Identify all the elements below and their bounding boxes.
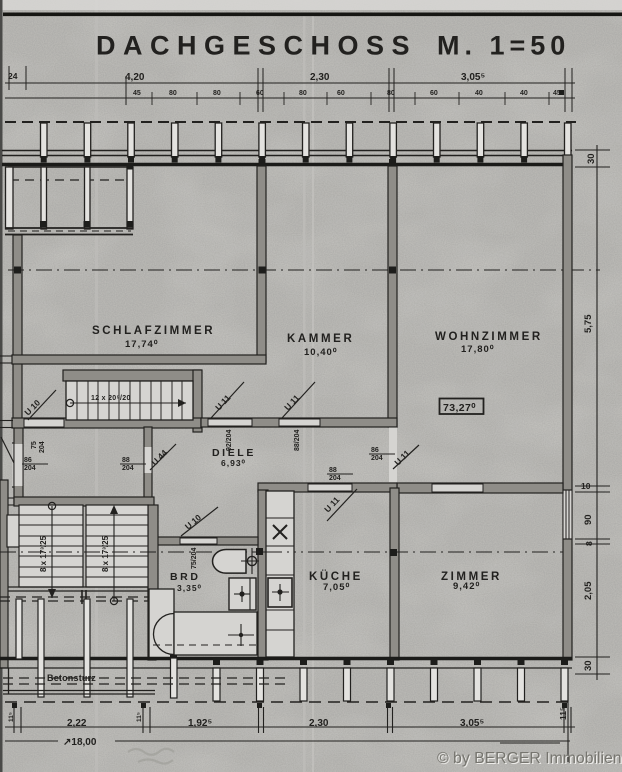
svg-text:204: 204 [122,465,134,472]
svg-text:8 x 17³/25: 8 x 17³/25 [39,535,48,572]
svg-text:40: 40 [475,90,483,97]
svg-text:↗18,00: ↗18,00 [63,737,97,748]
svg-text:Betonsturz: Betonsturz [47,673,96,683]
svg-text:80: 80 [213,90,221,97]
svg-text:24: 24 [8,71,18,81]
svg-text:80: 80 [169,90,177,97]
svg-text:2,22: 2,22 [67,718,87,729]
svg-text:204: 204 [329,475,341,482]
svg-text:60: 60 [430,90,438,97]
svg-text:M. 1=50: M. 1=50 [437,31,570,61]
svg-text:DACHGESCHOSS: DACHGESCHOSS [96,31,417,61]
svg-text:204: 204 [24,465,36,472]
svg-text:11⁵: 11⁵ [136,712,143,722]
svg-text:© by BERGER Immobilien: © by BERGER Immobilien [437,750,622,767]
svg-text:10: 10 [581,481,591,491]
svg-text:SCHLAFZIMMER: SCHLAFZIMMER [92,325,215,337]
svg-text:WOHNZIMMER: WOHNZIMMER [435,331,543,343]
svg-text:10,40⁰: 10,40⁰ [304,347,338,358]
svg-text:80: 80 [387,90,395,97]
svg-text:2,30: 2,30 [309,718,329,729]
svg-text:4,20: 4,20 [125,72,145,83]
svg-text:30: 30 [586,153,597,164]
svg-text:45: 45 [133,90,141,97]
svg-text:7,05⁰: 7,05⁰ [323,582,350,593]
svg-text:204: 204 [371,455,383,462]
svg-text:17,80⁰: 17,80⁰ [461,344,495,355]
svg-text:88: 88 [329,467,337,474]
svg-text:88: 88 [122,457,130,464]
svg-text:6,93⁰: 6,93⁰ [221,458,246,468]
svg-text:3,05⁵: 3,05⁵ [461,72,485,83]
svg-text:86: 86 [24,457,32,464]
svg-text:30: 30 [583,660,594,671]
svg-text:60: 60 [337,90,345,97]
svg-text:86: 86 [371,447,379,454]
svg-text:75: 75 [31,441,38,449]
svg-text:5,75: 5,75 [583,314,594,333]
svg-text:11⁵: 11⁵ [8,712,15,722]
svg-text:11⁵: 11⁵ [558,707,568,720]
svg-text:8: 8 [584,541,594,546]
svg-text:12 x 20⁵/20: 12 x 20⁵/20 [91,395,131,402]
svg-text:60: 60 [256,90,264,97]
svg-text:3,05⁵: 3,05⁵ [460,718,484,729]
svg-text:2,30: 2,30 [310,72,330,83]
svg-text:1,92⁵: 1,92⁵ [188,718,212,729]
svg-text:BRD: BRD [170,571,201,583]
svg-text:92/204: 92/204 [226,429,233,451]
svg-text:17,74⁰: 17,74⁰ [125,339,159,350]
svg-text:KAMMER: KAMMER [287,333,354,345]
svg-text:204: 204 [39,441,46,453]
svg-text:8 x 17³/25: 8 x 17³/25 [101,535,110,572]
svg-text:88/204: 88/204 [294,429,301,451]
svg-text:90: 90 [583,514,594,525]
svg-text:75/204: 75/204 [191,547,198,569]
svg-text:3,35⁰: 3,35⁰ [177,583,202,593]
svg-text:80: 80 [299,90,307,97]
svg-text:73,27⁰: 73,27⁰ [443,402,476,414]
svg-text:40: 40 [520,90,528,97]
svg-text:9,42⁰: 9,42⁰ [453,581,480,592]
svg-text:2,05: 2,05 [583,581,594,600]
